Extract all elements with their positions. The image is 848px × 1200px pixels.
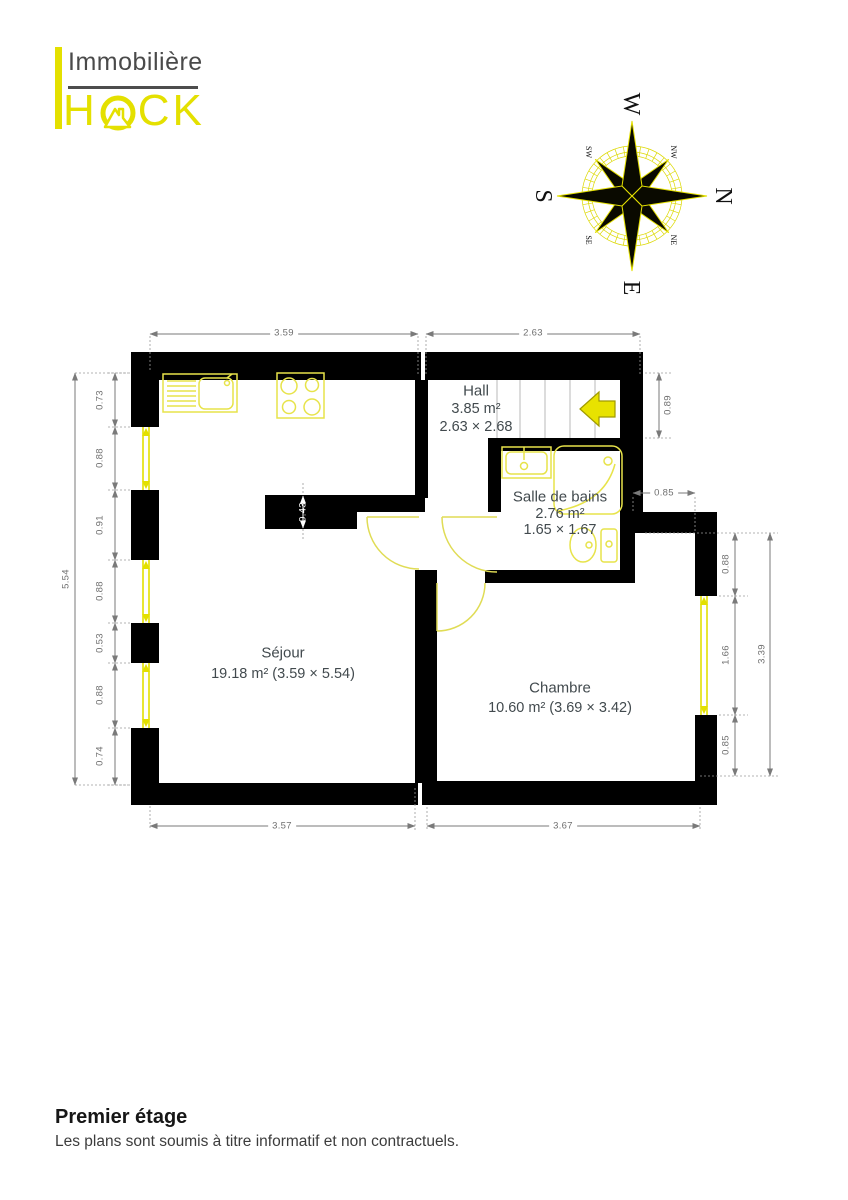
dim-right-chain-0: 0.88	[721, 554, 732, 574]
room-sejour-details: 19.18 m² (3.59 × 5.54)	[211, 666, 355, 682]
dim-left-chain-6: 0.74	[95, 746, 106, 766]
dim-left-chain-0: 0.73	[95, 390, 106, 410]
disclaimer-text: Les plans sont soumis à titre informatif…	[55, 1133, 459, 1151]
room-bath-area: 2.76 m²	[535, 506, 584, 522]
dim-left-chain-5: 0.88	[95, 685, 106, 705]
dim-right-step: 0.85	[650, 488, 678, 499]
room-chambre-name: Chambre	[529, 680, 591, 697]
dim-left-chain-2: 0.91	[95, 515, 106, 535]
room-hall-area: 3.85 m²	[451, 401, 500, 417]
room-bath-dims: 1.65 × 1.67	[524, 522, 597, 538]
dim-left-total: 5.54	[61, 569, 72, 589]
dim-top-left: 3.59	[270, 328, 298, 339]
room-bath-name: Salle de bains	[513, 489, 607, 506]
room-sejour-name: Séjour	[261, 645, 304, 662]
floor-title: Premier étage	[55, 1106, 187, 1129]
dim-left-chain-1: 0.88	[95, 448, 106, 468]
dim-right-chain-1: 1.66	[721, 645, 732, 665]
walls	[131, 352, 717, 805]
room-hall-dims: 2.63 × 2.68	[440, 419, 513, 435]
dim-stub: 0.43	[298, 502, 309, 522]
entry-arrow-icon	[580, 392, 615, 426]
dim-right-total: 3.39	[757, 644, 768, 664]
dim-bottom-right: 3.67	[549, 821, 577, 832]
room-hall-name: Hall	[463, 383, 489, 400]
dim-bottom-left: 3.57	[268, 821, 296, 832]
dim-right-chain-2: 0.85	[721, 735, 732, 755]
floor-plan-page: Immobilière H CK	[0, 0, 848, 1200]
dim-top-right: 2.63	[519, 328, 547, 339]
room-chambre-details: 10.60 m² (3.69 × 3.42)	[488, 700, 632, 716]
bath-sink	[502, 447, 551, 478]
dim-left-chain-4: 0.53	[95, 633, 106, 653]
floor-plan-drawing	[0, 0, 848, 1200]
dim-right-stair: 0.89	[663, 395, 674, 415]
dim-left-chain-3: 0.88	[95, 581, 106, 601]
